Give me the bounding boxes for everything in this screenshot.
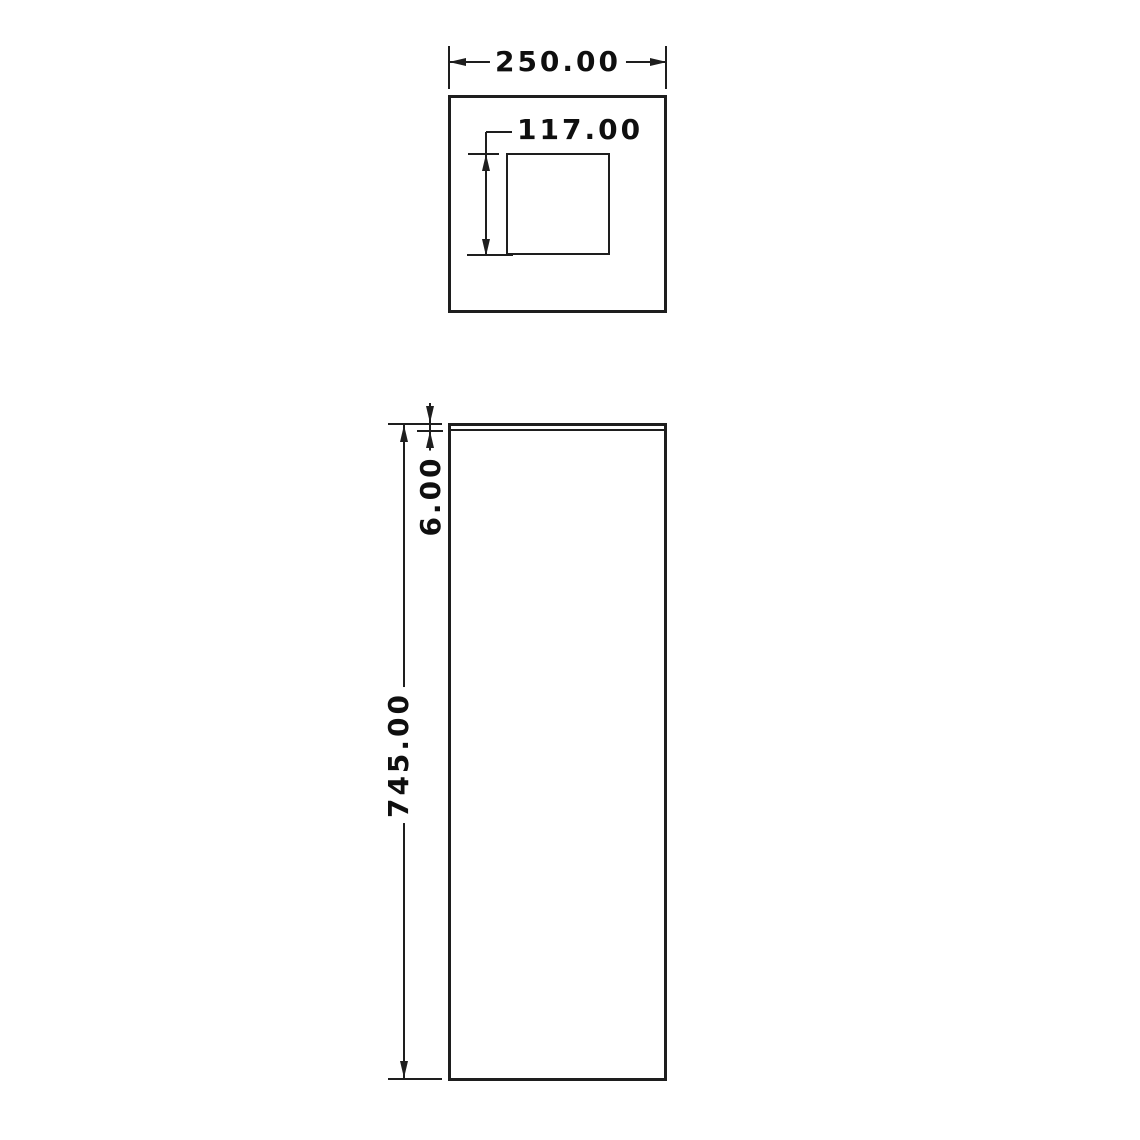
dim-745-extension-line-top [388,423,442,425]
drawing-canvas: 250.00 117.00 745.00 6.00 [0,0,1140,1140]
dim-745-extension-line-bottom [388,1078,442,1080]
dim-6-label: 6.00 [415,450,447,541]
front-view-top-panel-edge-line [451,429,664,431]
arrowhead-up-icon [426,431,434,448]
dim-745-label: 745.00 [383,687,415,823]
front-view-body-outline [448,423,667,1081]
arrowhead-down-icon [400,1061,408,1078]
front-view: 745.00 6.00 [0,0,1140,1140]
arrowhead-up-icon [400,425,408,442]
arrowhead-down-icon [426,406,434,423]
